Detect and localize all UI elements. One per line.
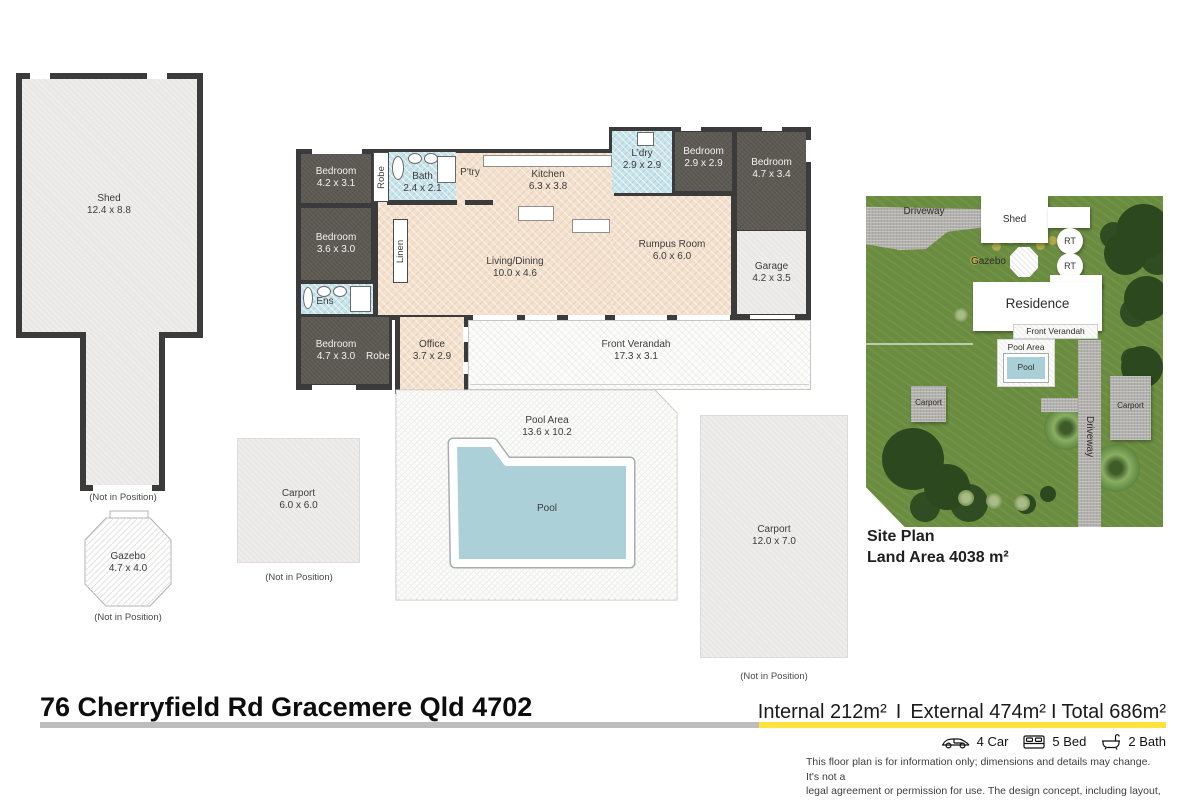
property-address: 76 Cherryfield Rd Gracemere Qld 4702 bbox=[40, 692, 532, 723]
total-area: Total 686m² bbox=[1062, 701, 1167, 723]
site-gazebo bbox=[1010, 247, 1038, 277]
floorplan-page: Shed 12.4 x 8.8 (Not in Position) Gazebo… bbox=[0, 0, 1200, 800]
site-carport-right-label: Carport bbox=[1110, 401, 1151, 410]
room-carport-small: Carport 6.0 x 6.0 bbox=[237, 487, 360, 513]
room-shed: Shed 12.4 x 8.8 bbox=[39, 192, 179, 218]
basin-icon bbox=[408, 153, 422, 164]
shrub bbox=[958, 490, 974, 506]
external-area: External 474m² bbox=[910, 701, 1046, 723]
tree bbox=[1124, 276, 1169, 321]
tree bbox=[1116, 204, 1171, 259]
room-ens: Ens bbox=[308, 295, 342, 309]
site-shed-wing bbox=[1048, 207, 1090, 228]
kitchen-bench bbox=[483, 155, 612, 167]
site-carport-left-label: Carport bbox=[911, 398, 946, 407]
shed-note: (Not in Position) bbox=[53, 492, 193, 503]
site-shed-label: Shed bbox=[981, 214, 1048, 225]
room-bedroom4: Bedroom 2.9 x 2.9 bbox=[675, 145, 732, 171]
room-garage: Garage 4.2 x 3.5 bbox=[737, 260, 806, 286]
plant bbox=[1048, 236, 1057, 245]
room-bedroom2: Bedroom 3.6 x 3.0 bbox=[301, 231, 371, 257]
room-ldry: L'dry 2.9 x 2.9 bbox=[612, 147, 672, 173]
room-gazebo: Gazebo 4.7 x 4.0 bbox=[58, 550, 198, 576]
room-office: Office 3.7 x 2.9 bbox=[400, 338, 464, 364]
plant bbox=[992, 242, 1001, 251]
room-bedroom5: Bedroom 4.7 x 3.4 bbox=[737, 156, 806, 182]
site-residence-label: Residence bbox=[973, 296, 1102, 311]
bath-feature: 2 Bath bbox=[1100, 733, 1166, 750]
basin-icon bbox=[424, 153, 438, 164]
site-driveway-stub bbox=[1041, 398, 1078, 412]
bed-feature: 5 Bed bbox=[1022, 734, 1086, 750]
site-plan: Driveway Shed RT RT Gazebo bbox=[866, 196, 1163, 527]
tree bbox=[882, 428, 944, 490]
area-divider: I bbox=[887, 701, 911, 723]
room-ptry: P'try bbox=[454, 166, 486, 180]
room-carport-large: Carport 12.0 x 7.0 bbox=[700, 523, 848, 549]
site-front-verandah-label: Front Verandah bbox=[1013, 326, 1098, 336]
site-pool-label: Pool bbox=[1004, 362, 1048, 372]
shower-icon bbox=[350, 286, 371, 312]
site-plan-land-area: Land Area 4038 m² bbox=[867, 549, 1009, 567]
robe-bottom: Robe bbox=[364, 351, 392, 363]
room-bath: Bath 2.4 x 2.1 bbox=[389, 170, 456, 196]
gazebo-note: (Not in Position) bbox=[48, 612, 208, 623]
washer-icon bbox=[637, 132, 654, 146]
area-divider: I bbox=[1046, 701, 1062, 723]
kitchen-island bbox=[518, 206, 554, 221]
area-summary: Internal 212m²IExternal 474m²ITotal 686m… bbox=[640, 701, 1166, 724]
room-kitchen: Kitchen 6.3 x 3.8 bbox=[486, 168, 610, 194]
shrub bbox=[954, 308, 968, 322]
site-driveway-side-label: Driveway bbox=[1078, 392, 1101, 482]
carport-small-note: (Not in Position) bbox=[238, 572, 360, 583]
room-pool-area: Pool Area 13.6 x 10.2 bbox=[467, 414, 627, 440]
room-verandah: Front Verandah 17.3 x 3.1 bbox=[468, 338, 804, 364]
site-plan-title: Site Plan bbox=[867, 528, 935, 546]
shrub bbox=[1014, 495, 1030, 511]
room-rumpus: Rumpus Room 6.0 x 6.0 bbox=[613, 238, 731, 264]
internal-area: Internal 212m² bbox=[758, 701, 887, 723]
site-driveway-top-label: Driveway bbox=[894, 206, 954, 217]
feature-summary: 4 Car 5 Bed 2 Bath bbox=[640, 733, 1166, 750]
kitchen-island2 bbox=[572, 219, 610, 233]
disclaimer-text: This floor plan is for information only;… bbox=[806, 755, 1166, 800]
robe-top: Robe bbox=[373, 152, 389, 202]
carport-large-note: (Not in Position) bbox=[700, 671, 848, 682]
rainwater-tank: RT bbox=[1057, 228, 1083, 254]
linen-closet: Linen bbox=[393, 219, 408, 283]
room-pool: Pool bbox=[497, 502, 597, 516]
bath-icon bbox=[1100, 733, 1122, 750]
car-feature: 4 Car bbox=[941, 734, 1009, 750]
bed-icon bbox=[1022, 734, 1046, 750]
room-bedroom1: Bedroom 4.2 x 3.1 bbox=[301, 165, 371, 191]
car-icon bbox=[941, 734, 971, 750]
room-living: Living/Dining 10.0 x 4.6 bbox=[435, 255, 595, 281]
site-pool-area-label: Pool Area bbox=[997, 342, 1055, 352]
room-bedroom3: Bedroom 4.7 x 3.0 bbox=[301, 338, 371, 364]
site-gazebo-label: Gazebo bbox=[960, 256, 1006, 267]
shrub bbox=[986, 493, 1002, 509]
